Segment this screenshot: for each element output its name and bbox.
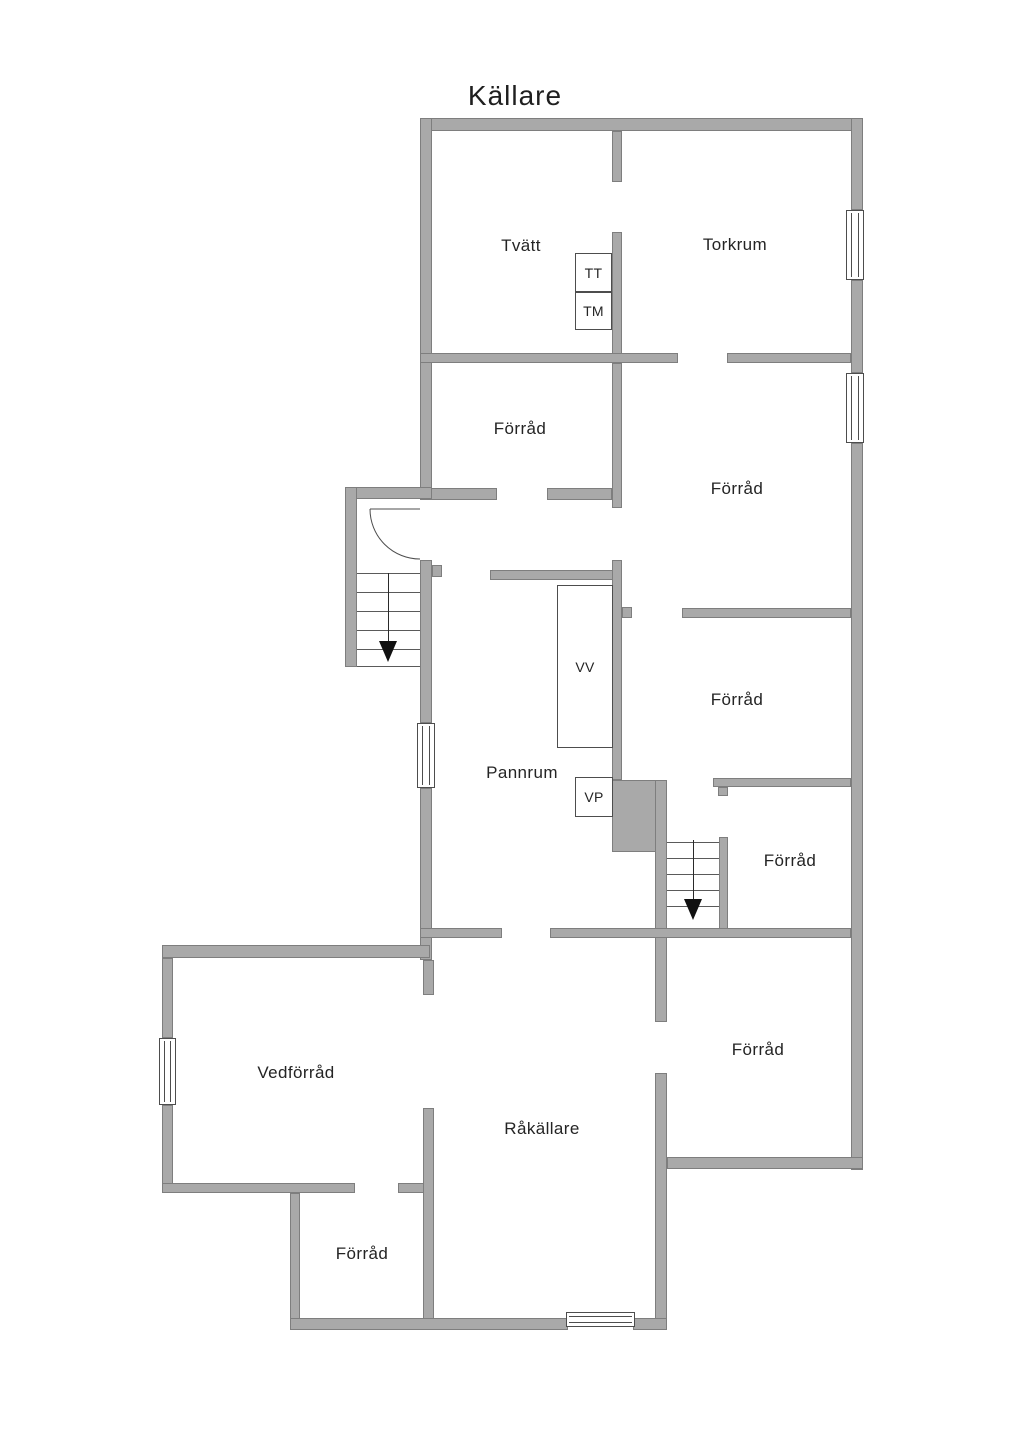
wall-segment	[612, 232, 622, 363]
appliance-label: TM	[583, 303, 604, 319]
room-label-tv-tt: Tvätt	[501, 236, 541, 256]
wall-segment	[655, 1073, 667, 1330]
wall-segment	[423, 1108, 434, 1320]
wall-segment	[398, 1183, 424, 1193]
room-label-f-rr-d: Förråd	[711, 690, 763, 710]
stair-direction-line	[693, 840, 694, 899]
room-label-f-rr-d: Förråd	[711, 479, 763, 499]
wall-segment	[612, 131, 622, 182]
wall-segment	[420, 118, 863, 131]
appliance-box-vp: VP	[575, 777, 613, 817]
wall-segment	[727, 353, 851, 363]
appliance-label: VP	[584, 789, 603, 805]
wall-segment	[420, 353, 678, 363]
wall-segment	[622, 607, 632, 618]
wall-segment	[612, 363, 622, 508]
wall-segment	[162, 1183, 355, 1193]
window-icon	[417, 723, 435, 788]
floor-plan: Källare TTTMVVVPTvättTorkrumFörrådFörråd…	[0, 0, 1024, 1448]
wall-segment	[851, 280, 863, 373]
stair-tread	[357, 666, 420, 667]
stair-down-arrow-icon	[379, 641, 397, 662]
room-label-r-k-llare: Råkällare	[504, 1119, 579, 1139]
appliance-box-tm: TM	[575, 292, 612, 330]
wall-segment	[432, 565, 442, 577]
appliance-label: VV	[575, 659, 594, 675]
wall-segment	[851, 443, 863, 1170]
window-icon	[159, 1038, 176, 1105]
door-swing-arc	[370, 509, 420, 559]
wall-segment	[550, 928, 851, 938]
stair-direction-line	[388, 573, 389, 641]
wall-segment	[718, 787, 728, 796]
wall-segment	[490, 570, 617, 580]
wall-segment	[655, 780, 667, 1022]
window-icon	[566, 1312, 635, 1327]
wall-segment	[682, 608, 851, 618]
wall-segment	[420, 118, 432, 499]
room-label-f-rr-d: Förråd	[336, 1244, 388, 1264]
wall-segment	[667, 1157, 863, 1169]
room-label-f-rr-d: Förråd	[764, 851, 816, 871]
wall-segment	[423, 960, 434, 995]
wall-segment	[633, 1318, 667, 1330]
window-icon	[846, 373, 864, 443]
room-label-f-rr-d: Förråd	[494, 419, 546, 439]
page-title: Källare	[468, 80, 562, 112]
wall-segment	[345, 487, 357, 667]
room-label-pannrum: Pannrum	[486, 763, 558, 783]
appliance-box-tt: TT	[575, 253, 612, 292]
wall-segment	[420, 928, 502, 938]
wall-segment	[162, 1105, 173, 1193]
wall-segment	[290, 1193, 300, 1328]
wall-segment	[851, 118, 863, 210]
appliance-label: TT	[585, 265, 603, 281]
wall-segment	[162, 958, 173, 1038]
wall-segment	[420, 560, 432, 723]
room-label-f-rr-d: Förråd	[732, 1040, 784, 1060]
wall-segment	[345, 487, 432, 499]
wall-segment	[719, 837, 728, 932]
wall-segment	[713, 778, 851, 787]
appliance-box-vv: VV	[557, 585, 613, 748]
room-label-torkrum: Torkrum	[703, 235, 767, 255]
wall-segment	[612, 560, 622, 780]
window-icon	[846, 210, 864, 280]
wall-segment	[290, 1318, 568, 1330]
wall-segment	[547, 488, 612, 500]
door-swing-layer	[0, 0, 1024, 1448]
stair-down-arrow-icon	[684, 899, 702, 920]
room-label-vedf-rr-d: Vedförråd	[257, 1063, 334, 1083]
wall-segment	[162, 945, 430, 958]
